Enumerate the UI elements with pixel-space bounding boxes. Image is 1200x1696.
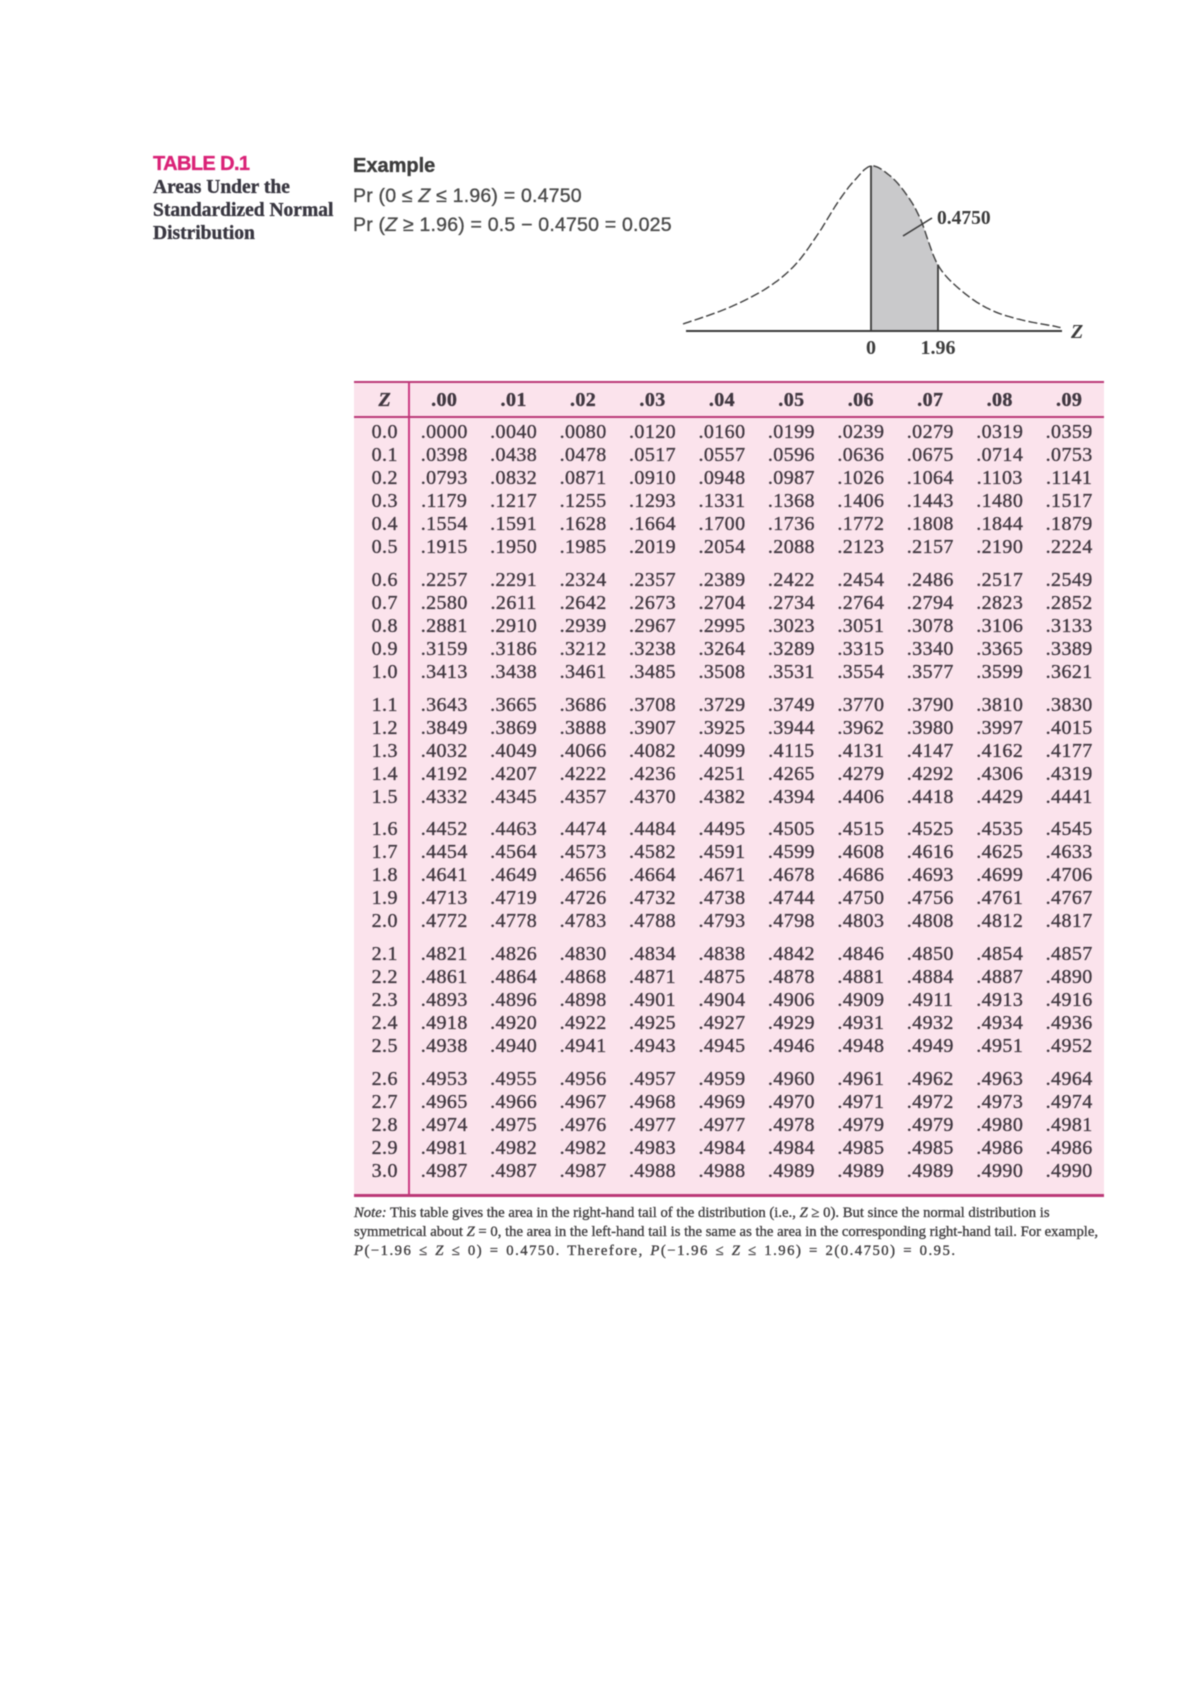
svg-text:0: 0	[866, 337, 876, 359]
svg-text:1.96: 1.96	[921, 337, 956, 359]
svg-text:Z: Z	[1070, 321, 1083, 343]
svg-text:0.4750: 0.4750	[937, 208, 991, 229]
